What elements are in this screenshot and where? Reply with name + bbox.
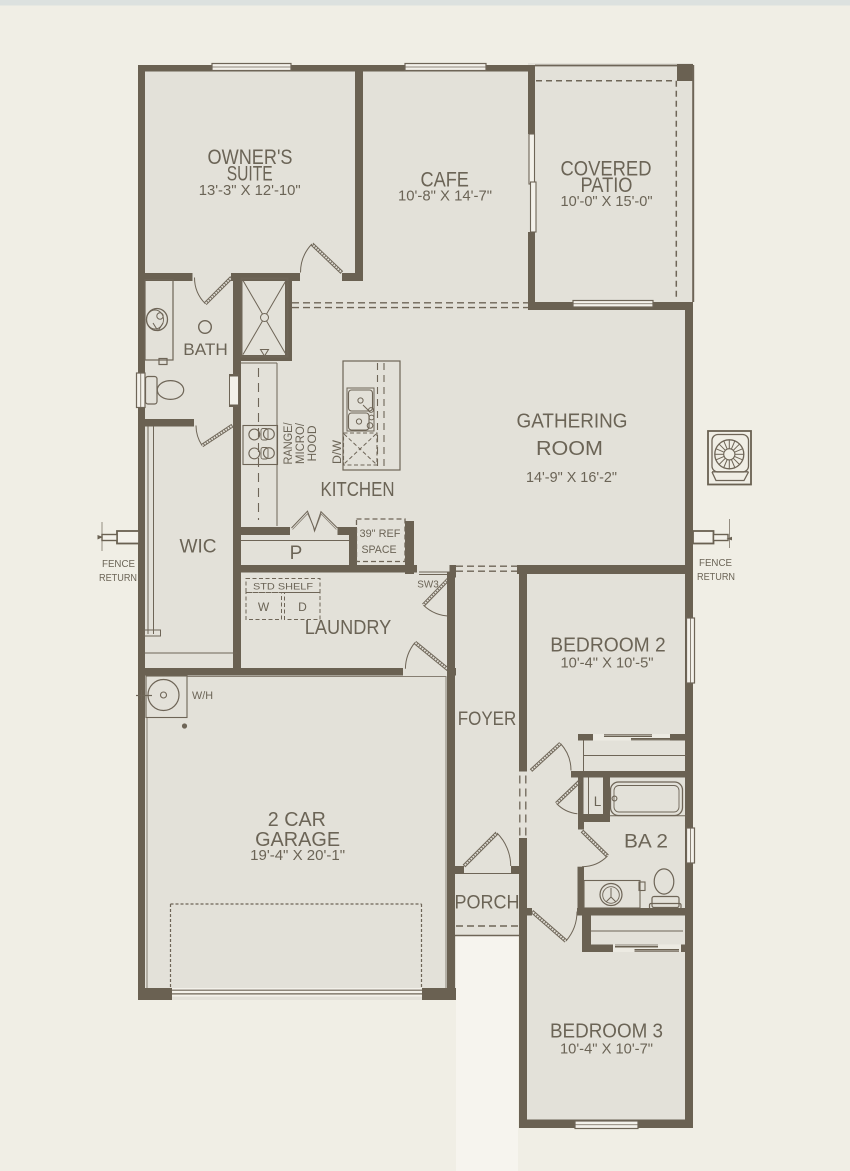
- svg-text:BA 2: BA 2: [624, 832, 668, 853]
- svg-text:STD SHELF: STD SHELF: [253, 582, 313, 593]
- svg-text:13'-3" X 12'-10": 13'-3" X 12'-10": [199, 182, 301, 199]
- svg-text:RETURN: RETURN: [99, 573, 137, 584]
- svg-text:19'-4" X 20'-1": 19'-4" X 20'-1": [250, 847, 345, 864]
- svg-text:D/W: D/W: [332, 440, 344, 464]
- svg-text:WIC: WIC: [180, 537, 217, 558]
- svg-text:10'-4" X 10'-7": 10'-4" X 10'-7": [560, 1041, 653, 1058]
- svg-text:L: L: [594, 794, 602, 809]
- svg-text:BEDROOM 2: BEDROOM 2: [550, 635, 666, 657]
- svg-text:FENCE: FENCE: [699, 558, 732, 569]
- svg-text:W: W: [258, 600, 270, 614]
- svg-text:14'-9" X 16'-2": 14'-9" X 16'-2": [526, 469, 617, 486]
- svg-text:RETURN: RETURN: [697, 572, 735, 583]
- svg-text:RANGE/: RANGE/: [283, 422, 295, 465]
- svg-text:2 CAR: 2 CAR: [268, 809, 326, 831]
- svg-text:ROOM: ROOM: [536, 438, 603, 460]
- svg-text:10'-0" X 15'-0": 10'-0" X 15'-0": [561, 193, 653, 210]
- svg-text:D: D: [298, 600, 307, 614]
- svg-text:W/H: W/H: [192, 690, 213, 702]
- svg-text:LAUNDRY: LAUNDRY: [305, 617, 392, 639]
- svg-text:GATHERING: GATHERING: [517, 411, 628, 433]
- svg-text:39" REF: 39" REF: [360, 528, 401, 540]
- svg-text:10'-8" X 14'-7": 10'-8" X 14'-7": [398, 188, 492, 205]
- svg-text:10'-4" X 10'-5": 10'-4" X 10'-5": [561, 655, 654, 672]
- svg-text:FENCE: FENCE: [102, 559, 135, 570]
- svg-text:MICRO/: MICRO/: [295, 422, 307, 464]
- svg-text:SW3: SW3: [417, 579, 439, 591]
- svg-text:SPACE: SPACE: [362, 544, 397, 556]
- svg-text:BATH: BATH: [183, 340, 228, 359]
- svg-text:FOYER: FOYER: [458, 709, 517, 730]
- svg-text:HOOD: HOOD: [307, 426, 319, 462]
- svg-text:PORCH: PORCH: [455, 893, 520, 914]
- svg-text:BEDROOM 3: BEDROOM 3: [550, 1021, 663, 1043]
- svg-text:P: P: [290, 543, 303, 564]
- svg-text:KITCHEN: KITCHEN: [321, 479, 395, 501]
